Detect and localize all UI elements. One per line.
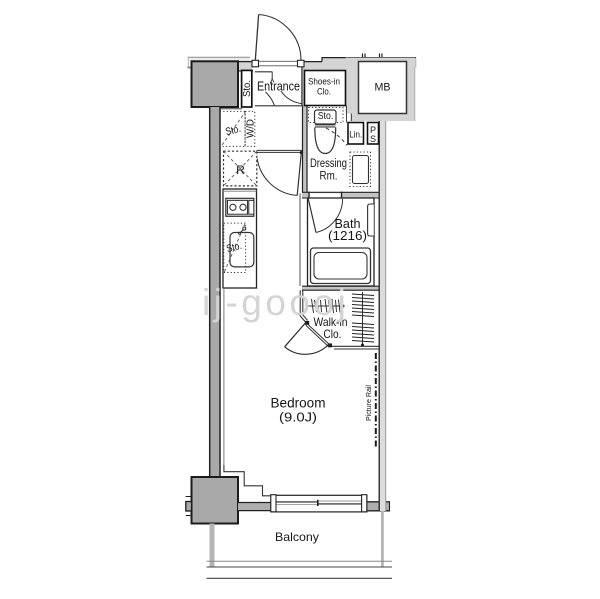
- svg-text:ij-goooj: ij-goooj: [202, 282, 349, 323]
- svg-text:Sto.: Sto.: [241, 80, 253, 97]
- svg-text:Clo.: Clo.: [317, 87, 331, 98]
- svg-text:Lin.: Lin.: [349, 130, 362, 141]
- svg-text:Clo.: Clo.: [323, 327, 341, 341]
- svg-text:Sto.: Sto.: [224, 123, 242, 138]
- svg-text:S: S: [370, 134, 376, 144]
- svg-text:MB: MB: [375, 82, 391, 94]
- svg-text:W/D: W/D: [244, 119, 256, 138]
- svg-text:Bedroom: Bedroom: [271, 395, 326, 411]
- svg-text:Balcony: Balcony: [275, 530, 319, 544]
- svg-text:Dressing: Dressing: [310, 158, 347, 170]
- svg-text:(1216): (1216): [328, 229, 367, 243]
- svg-text:(9.0J): (9.0J): [279, 410, 317, 425]
- svg-text:Picture Rail: Picture Rail: [364, 385, 373, 421]
- svg-text:Entrance: Entrance: [257, 80, 300, 94]
- svg-text:R: R: [236, 163, 245, 177]
- svg-text:Rm.: Rm.: [320, 171, 338, 183]
- svg-text:Sto.: Sto.: [318, 110, 334, 122]
